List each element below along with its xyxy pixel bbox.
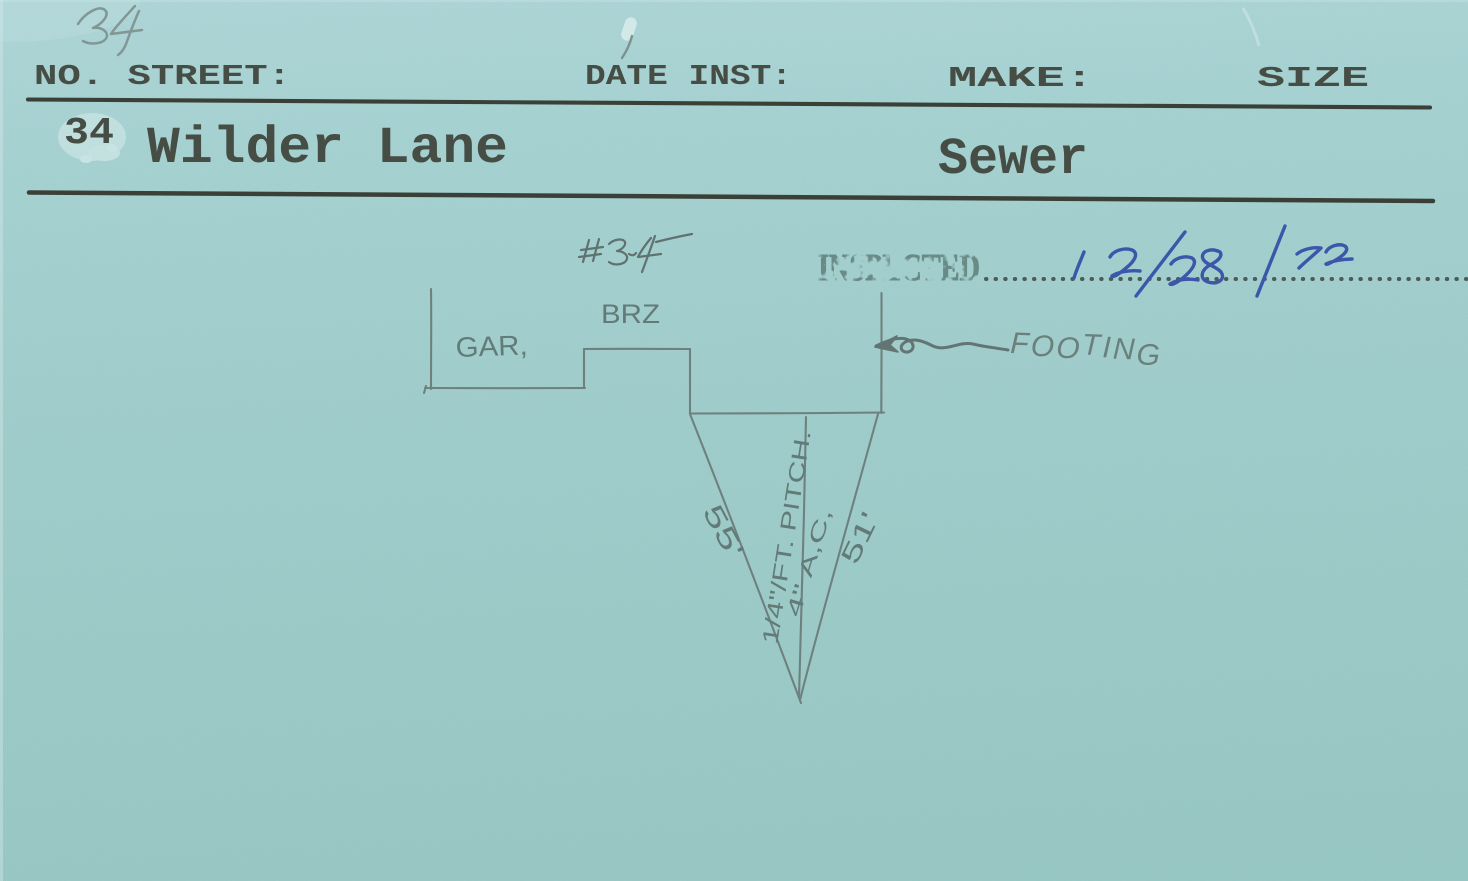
svg-text:NO. STREET:: NO. STREET: [34,60,291,93]
svg-text:34: 34 [64,112,114,155]
svg-text:MAKE:: MAKE: [948,62,1094,95]
svg-text:Wilder Lane: Wilder Lane [147,119,508,178]
svg-text:INSPECTED: INSPECTED [818,247,980,289]
svg-text:DATE INST:: DATE INST: [585,60,792,93]
svg-text:BRZ: BRZ [601,299,660,329]
svg-text:SIZE: SIZE [1257,62,1369,95]
svg-text:Sewer: Sewer [938,130,1088,189]
svg-text:GAR,: GAR, [455,329,528,362]
